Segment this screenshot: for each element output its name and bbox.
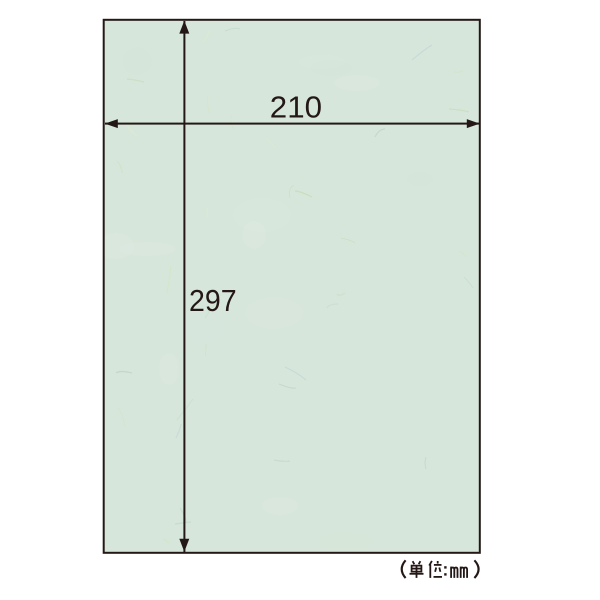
- svg-text:297: 297: [189, 284, 237, 318]
- svg-text:210: 210: [270, 89, 322, 124]
